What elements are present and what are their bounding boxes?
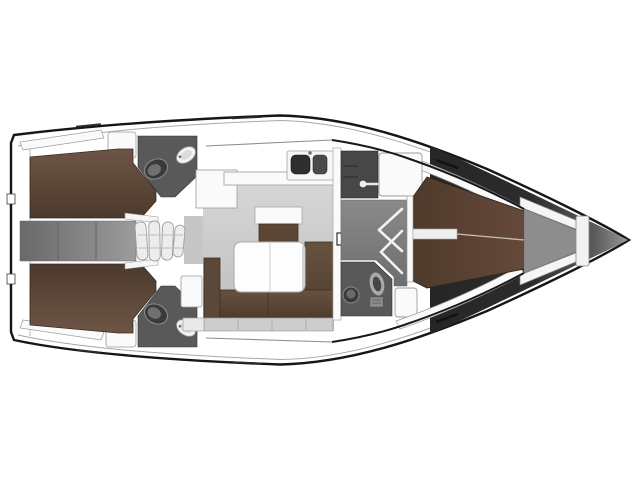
companionway-steps-icon: [135, 221, 186, 261]
sideboard-base: [259, 224, 298, 242]
galley-double-sink-icon: [287, 151, 336, 180]
salon-table-icon: [234, 242, 305, 292]
sideboard-top: [255, 207, 302, 224]
wardrobe-floor: [341, 151, 378, 198]
toilet-icon: [343, 287, 359, 303]
salon-cabinet: [181, 276, 202, 307]
transom-notch-bottom: [7, 274, 15, 284]
corridor-floor: [20, 221, 136, 261]
mattress-divider: [413, 229, 457, 239]
yacht-floorplan: Sailing yacht interior layout plan (top …: [0, 0, 640, 480]
side-box: [183, 318, 204, 331]
wardrobe: Wardrobe with hanging rod: [341, 151, 379, 198]
bed-foot-board: [407, 196, 413, 282]
locker: [379, 153, 422, 196]
under-sofa-strip: [204, 318, 333, 331]
yacht-floorplan-canvas: Sailing yacht interior layout plan (top …: [0, 0, 640, 480]
locker-frame-bar: [576, 216, 589, 266]
step-seat: [395, 288, 417, 317]
sideboard: Salon sideboard: [255, 207, 302, 242]
transom-notch-top: [7, 194, 15, 204]
aft-corridor-engine: [20, 221, 136, 261]
sofa-left-arm: [204, 258, 220, 318]
